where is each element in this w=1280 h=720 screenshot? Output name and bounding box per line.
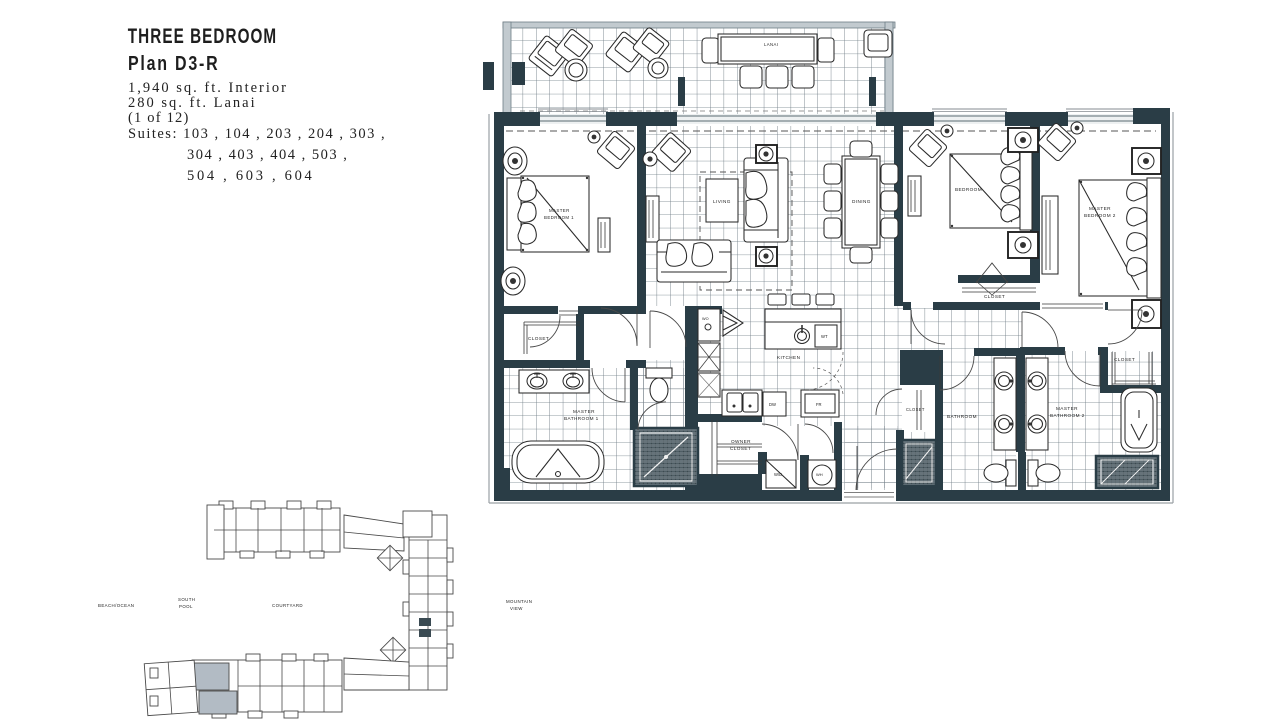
svg-text:POOL: POOL <box>179 604 193 609</box>
svg-text:BEDROOM 1: BEDROOM 1 <box>544 215 574 220</box>
svg-text:FR: FR <box>816 402 822 407</box>
svg-text:BEDROOM: BEDROOM <box>955 187 982 192</box>
svg-text:Suites: 103 , 104 , 203 , 204: Suites: 103 , 104 , 203 , 204 , 303 , <box>128 126 386 142</box>
svg-text:(1 of 12): (1 of 12) <box>128 110 190 126</box>
svg-text:MOUNTAIN: MOUNTAIN <box>506 599 532 604</box>
svg-text:OWNER: OWNER <box>731 439 751 444</box>
svg-text:LANAI: LANAI <box>764 42 778 47</box>
svg-text:KITCHEN: KITCHEN <box>777 355 800 360</box>
svg-text:WH: WH <box>816 472 823 477</box>
svg-text:BEDROOM 2: BEDROOM 2 <box>1084 213 1116 218</box>
svg-text:1,940 sq. ft. Interior: 1,940 sq. ft. Interior <box>128 80 288 96</box>
svg-text:CLOSET: CLOSET <box>906 407 925 412</box>
svg-text:COURTYARD: COURTYARD <box>272 603 303 608</box>
svg-text:WT: WT <box>821 334 828 339</box>
svg-text:BATHROOM 2: BATHROOM 2 <box>1050 413 1085 418</box>
svg-text:304 , 403 , 404 , 503 ,: 304 , 403 , 404 , 503 , <box>187 147 348 163</box>
svg-text:VIEW: VIEW <box>510 606 523 611</box>
svg-text:CLOSET: CLOSET <box>984 294 1005 299</box>
svg-text:THREE BEDROOM: THREE BEDROOM <box>128 23 277 47</box>
svg-text:MASTER: MASTER <box>573 409 595 414</box>
svg-text:W/D: W/D <box>774 472 782 477</box>
svg-text:DINING: DINING <box>852 199 871 204</box>
svg-text:CLOSET: CLOSET <box>528 336 549 341</box>
svg-text:BEACH/OCEAN: BEACH/OCEAN <box>98 603 134 608</box>
svg-text:LIVING: LIVING <box>713 199 731 204</box>
svg-text:CLOSET: CLOSET <box>730 446 751 451</box>
svg-text:504 , 603 , 604: 504 , 603 , 604 <box>187 168 315 184</box>
svg-text:CLOSET: CLOSET <box>1114 357 1135 362</box>
svg-text:MASTER: MASTER <box>549 208 570 213</box>
svg-text:DW: DW <box>769 402 776 407</box>
svg-text:BATHROOM: BATHROOM <box>947 414 977 419</box>
svg-text:Plan D3-R: Plan D3-R <box>128 52 219 74</box>
svg-text:SOUTH: SOUTH <box>178 597 195 602</box>
svg-text:MASTER: MASTER <box>1056 406 1078 411</box>
svg-text:MASTER: MASTER <box>1089 206 1111 211</box>
svg-text:WO: WO <box>702 317 709 321</box>
svg-text:280 sq. ft. Lanai: 280 sq. ft. Lanai <box>128 95 257 111</box>
svg-text:BATHROOM 1: BATHROOM 1 <box>564 416 599 421</box>
